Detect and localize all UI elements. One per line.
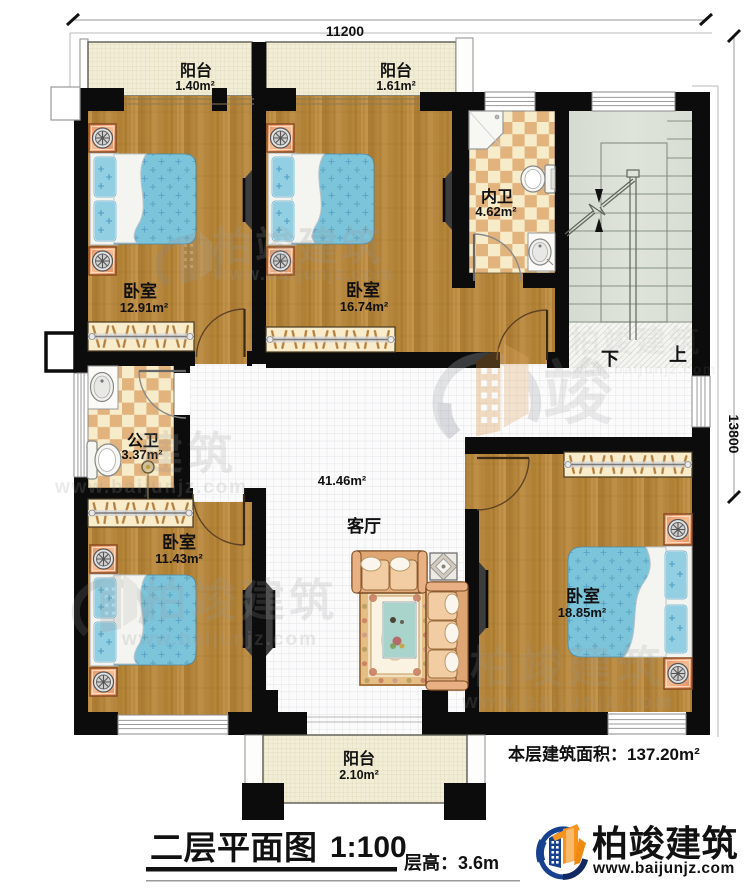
svg-text:柏竣建筑: 柏竣建筑 bbox=[142, 575, 338, 626]
svg-text:阳台: 阳台 bbox=[180, 61, 212, 80]
svg-text:1.40m²: 1.40m² bbox=[175, 79, 215, 93]
svg-text:www.baijunjz.com: www.baijunjz.com bbox=[54, 477, 248, 498]
svg-text:11200: 11200 bbox=[326, 23, 364, 39]
svg-text:卧室: 卧室 bbox=[123, 281, 157, 301]
svg-text:13800: 13800 bbox=[726, 415, 742, 454]
svg-text:客厅: 客厅 bbox=[346, 516, 381, 536]
svg-text:卧室: 卧室 bbox=[162, 532, 196, 552]
svg-text:二层平面图: 二层平面图 bbox=[150, 829, 318, 866]
svg-text:建筑: 建筑 bbox=[138, 428, 238, 479]
svg-text:柏竣建筑: 柏竣建筑 bbox=[592, 823, 738, 864]
svg-text:柏竣建筑: 柏竣建筑 bbox=[470, 643, 666, 692]
svg-text:41.46m²: 41.46m² bbox=[318, 473, 367, 488]
svg-text:18.85m²: 18.85m² bbox=[558, 605, 607, 620]
svg-text:本层建筑面积：137.20m²: 本层建筑面积：137.20m² bbox=[508, 744, 700, 764]
svg-text:4.62m²: 4.62m² bbox=[475, 204, 517, 219]
svg-text:www.baijunjz.com: www.baijunjz.com bbox=[121, 629, 318, 650]
svg-text:1.61m²: 1.61m² bbox=[376, 79, 416, 93]
svg-text:层高：3.6m: 层高：3.6m bbox=[404, 852, 499, 873]
svg-text:阳台: 阳台 bbox=[380, 61, 412, 80]
svg-text:16.74m²: 16.74m² bbox=[340, 299, 389, 314]
svg-text:2.10m²: 2.10m² bbox=[339, 768, 379, 782]
svg-text:柏竣建筑: 柏竣建筑 bbox=[570, 325, 702, 359]
svg-text:www.baijunjz.com: www.baijunjz.com bbox=[213, 264, 393, 284]
svg-text:www.baijunjz.com: www.baijunjz.com bbox=[571, 361, 717, 377]
svg-text:卧室: 卧室 bbox=[566, 586, 600, 606]
svg-text:www.baijunjz.com: www.baijunjz.com bbox=[461, 691, 675, 713]
svg-text:1:100: 1:100 bbox=[330, 831, 407, 864]
svg-text:11.43m²: 11.43m² bbox=[155, 551, 203, 566]
svg-text:阳台: 阳台 bbox=[343, 749, 375, 768]
svg-text:柏竣建筑: 柏竣建筑 bbox=[212, 225, 384, 269]
svg-text:www.baijunjz.com: www.baijunjz.com bbox=[592, 860, 735, 877]
svg-text:12.91m²: 12.91m² bbox=[120, 300, 169, 315]
